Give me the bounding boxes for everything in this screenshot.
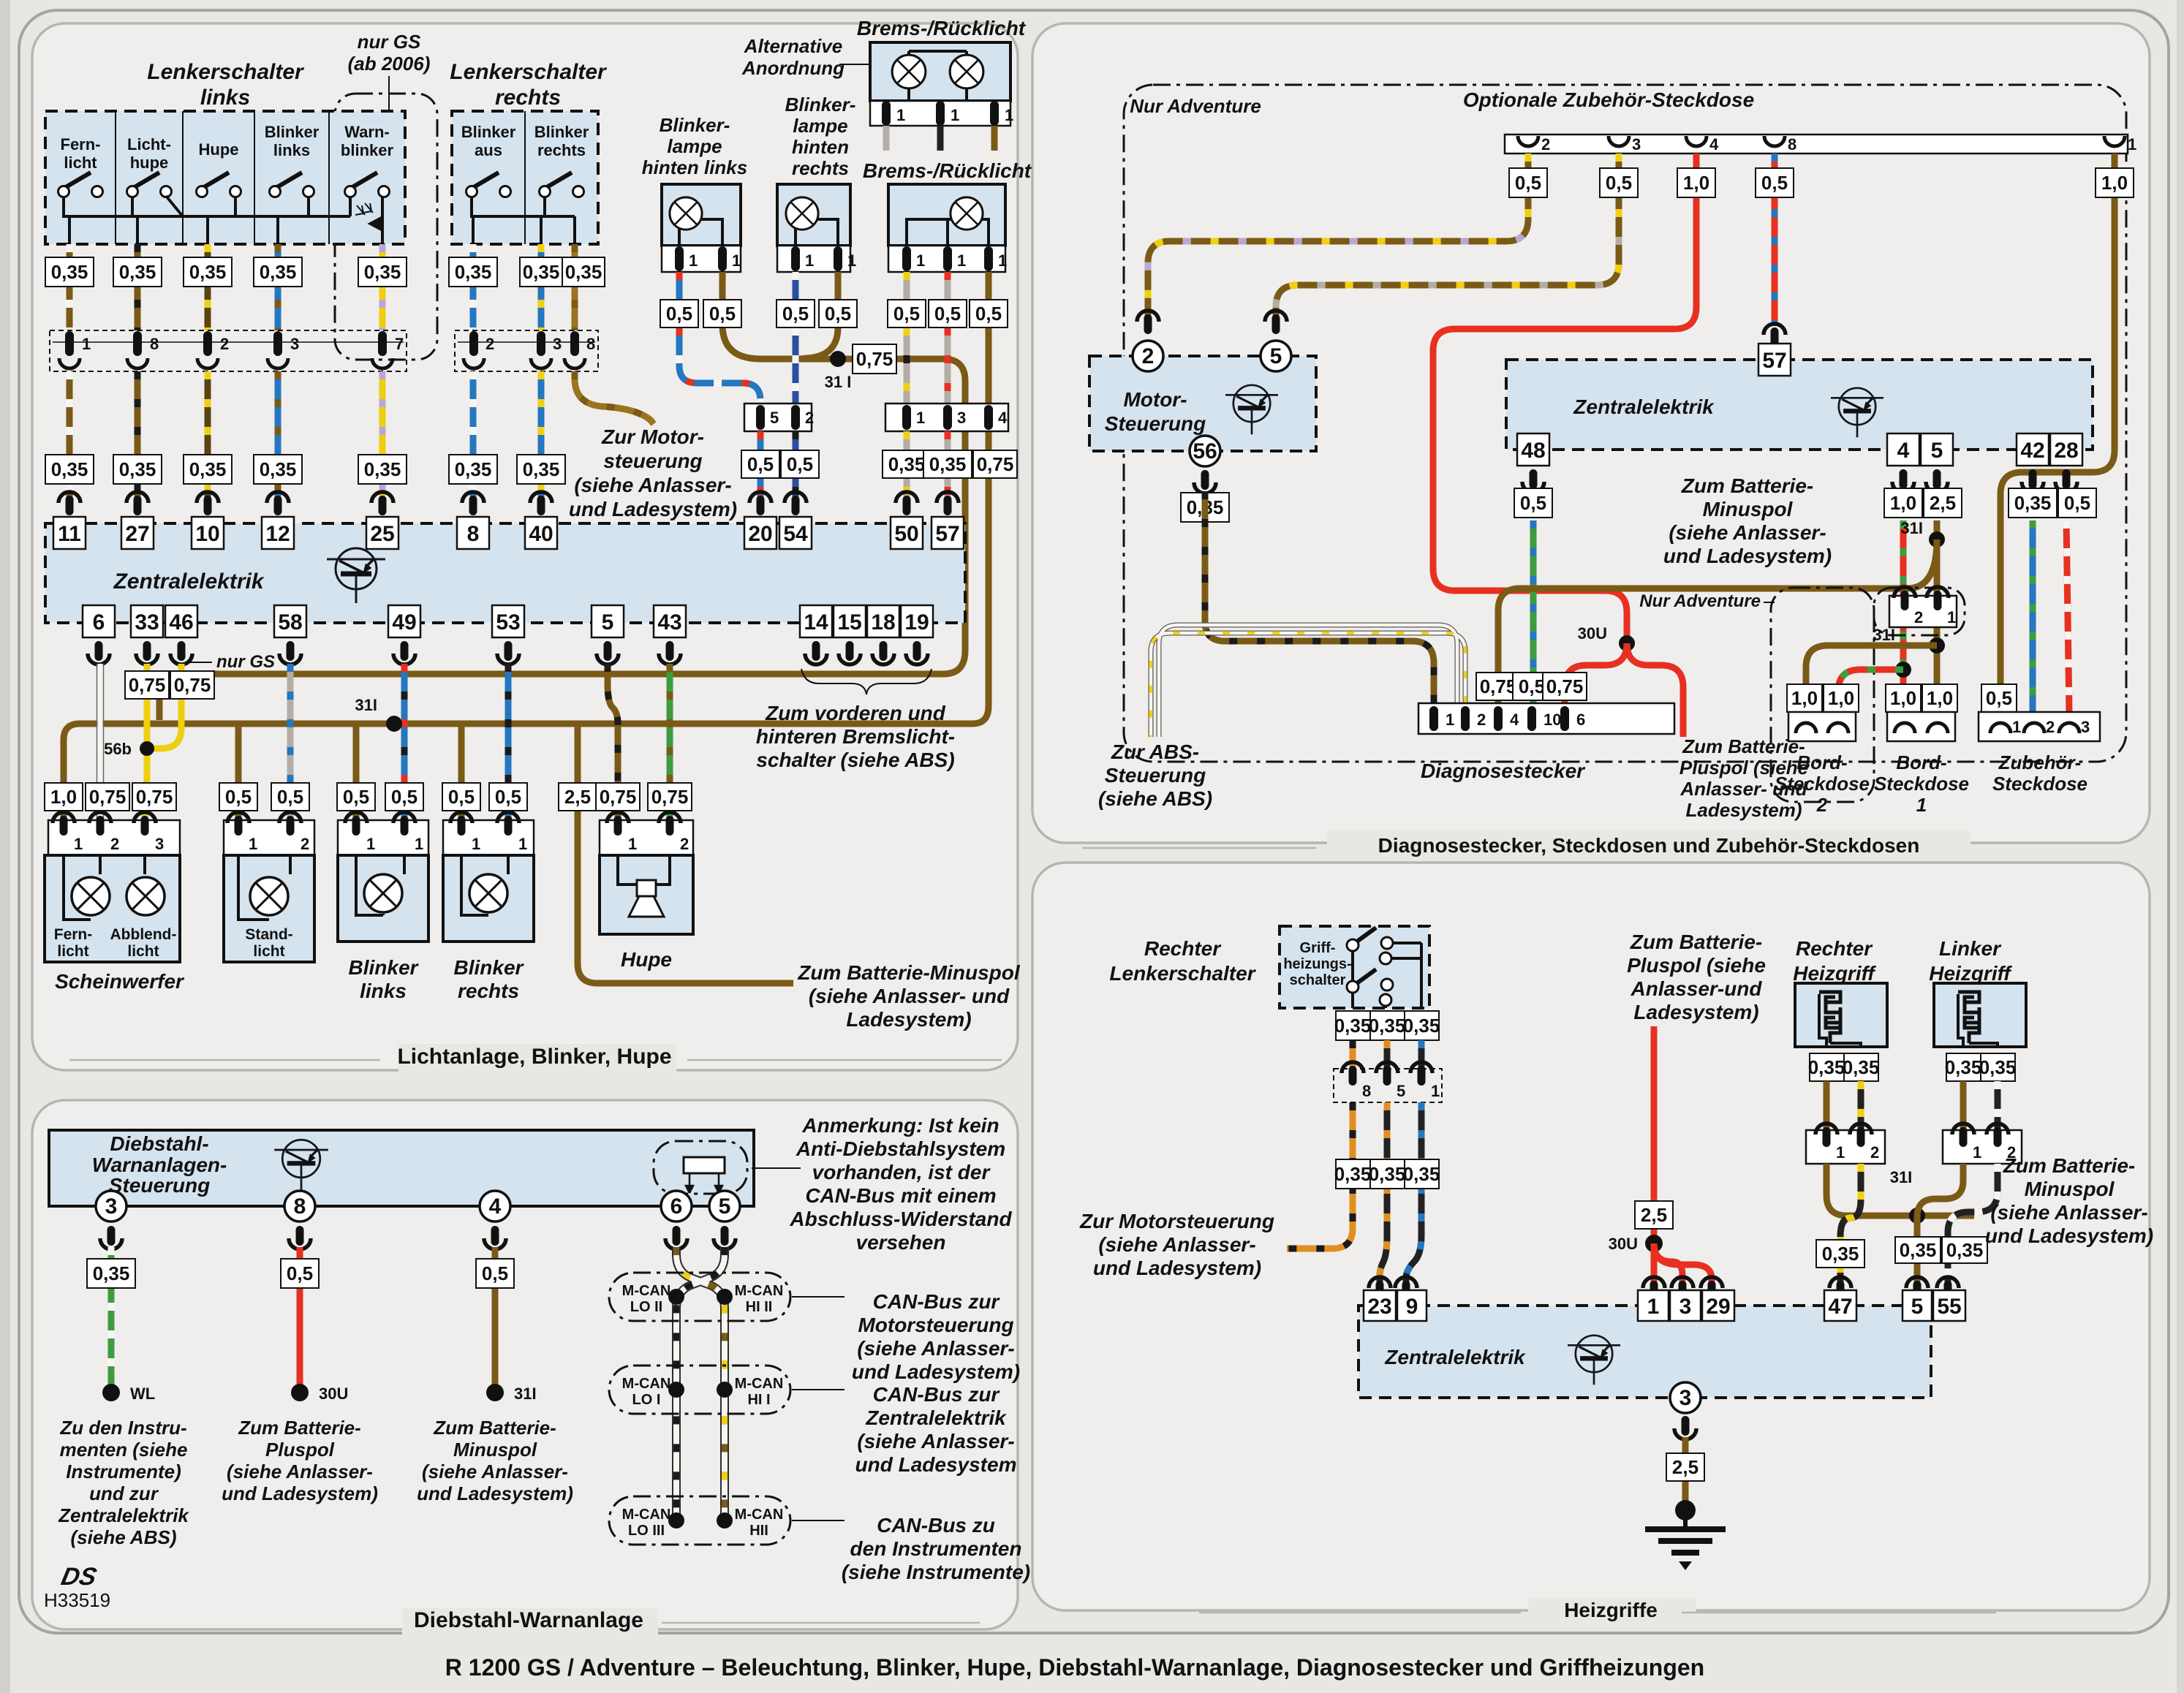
svg-text:Zentralelektrik: Zentralelektrik — [1573, 395, 1715, 418]
svg-text:1: 1 — [472, 835, 480, 853]
svg-text:1,0: 1,0 — [1828, 687, 1854, 709]
svg-text:hinten: hinten — [792, 136, 849, 158]
svg-text:Griff-: Griff- — [1300, 940, 1336, 956]
svg-text:31I: 31I — [1900, 519, 1923, 537]
svg-text:DS: DS — [58, 1563, 99, 1591]
svg-text:1: 1 — [1647, 1295, 1660, 1319]
svg-text:1: 1 — [249, 835, 257, 853]
svg-text:30U: 30U — [319, 1385, 348, 1403]
svg-text:1: 1 — [916, 409, 925, 427]
svg-text:Ladesystem): Ladesystem) — [846, 1008, 971, 1031]
svg-text:48: 48 — [1521, 439, 1545, 463]
svg-text:2: 2 — [805, 409, 814, 427]
svg-text:Hupe: Hupe — [199, 140, 239, 159]
svg-text:Minuspol: Minuspol — [453, 1439, 537, 1461]
svg-text:1: 1 — [896, 106, 905, 124]
svg-text:0,5: 0,5 — [1986, 687, 2012, 709]
svg-text:58: 58 — [278, 610, 302, 635]
svg-text:2: 2 — [1870, 1143, 1879, 1162]
svg-text:1: 1 — [957, 251, 966, 270]
svg-text:steuerung: steuerung — [603, 450, 702, 472]
svg-text:0,35: 0,35 — [1843, 1056, 1880, 1078]
svg-text:0,35: 0,35 — [189, 261, 227, 283]
svg-text:Zubehör-: Zubehör- — [1998, 751, 2082, 773]
svg-text:2: 2 — [1914, 608, 1923, 626]
svg-text:0,5: 0,5 — [1519, 675, 1545, 697]
svg-text:Scheinwerfer: Scheinwerfer — [55, 970, 185, 993]
svg-text:0,75: 0,75 — [600, 786, 637, 808]
svg-text:1: 1 — [1005, 106, 1013, 124]
svg-text:links: links — [273, 141, 310, 159]
svg-text:Zentralelektrik: Zentralelektrik — [865, 1406, 1007, 1429]
svg-text:42: 42 — [2020, 439, 2044, 463]
svg-text:2: 2 — [1541, 135, 1550, 154]
svg-text:Minuspol: Minuspol — [1703, 498, 1794, 520]
svg-text:0,35: 0,35 — [51, 261, 88, 283]
svg-text:3: 3 — [290, 335, 299, 353]
svg-text:0,5: 0,5 — [343, 786, 369, 808]
svg-text:und Ladesystem): und Ladesystem) — [1985, 1224, 2153, 1247]
svg-text:9: 9 — [1406, 1295, 1418, 1319]
svg-text:0,5: 0,5 — [277, 786, 303, 808]
svg-text:0,5: 0,5 — [448, 786, 475, 808]
svg-text:rechts: rechts — [495, 86, 561, 110]
svg-text:0,35: 0,35 — [119, 261, 156, 283]
svg-text:M-CAN: M-CAN — [735, 1507, 784, 1523]
svg-text:0,5: 0,5 — [1761, 172, 1788, 194]
svg-text:Rechter: Rechter — [1144, 937, 1222, 960]
svg-text:1: 1 — [2128, 135, 2136, 154]
svg-text:3: 3 — [2081, 718, 2090, 736]
svg-text:0,75: 0,75 — [651, 786, 689, 808]
svg-text:Ladesystem): Ladesystem) — [1633, 1001, 1758, 1023]
svg-text:8: 8 — [150, 335, 159, 353]
svg-text:5: 5 — [602, 610, 614, 635]
svg-text:2,5: 2,5 — [564, 786, 591, 808]
svg-text:Optionale Zubehör-Steckdose: Optionale Zubehör-Steckdose — [1463, 88, 1754, 111]
svg-text:Pluspol: Pluspol — [265, 1439, 335, 1461]
svg-text:lampe: lampe — [793, 115, 847, 137]
svg-text:40: 40 — [529, 522, 553, 546]
svg-text:H33519: H33519 — [44, 1589, 110, 1611]
svg-text:18: 18 — [871, 610, 895, 635]
svg-text:8: 8 — [1788, 135, 1796, 154]
svg-text:0,5: 0,5 — [825, 303, 851, 325]
svg-text:50: 50 — [894, 522, 918, 546]
svg-text:5: 5 — [719, 1194, 731, 1219]
svg-text:8: 8 — [586, 335, 595, 353]
svg-text:1,0: 1,0 — [1927, 687, 1953, 709]
svg-text:(siehe Anlasser-: (siehe Anlasser- — [574, 474, 731, 496]
svg-text:30U: 30U — [1578, 624, 1607, 643]
svg-text:0,35: 0,35 — [1334, 1163, 1372, 1185]
svg-text:M-CAN: M-CAN — [622, 1283, 671, 1299]
svg-text:0,5: 0,5 — [1606, 172, 1632, 194]
svg-text:LO II: LO II — [630, 1299, 662, 1315]
svg-text:5: 5 — [1397, 1082, 1405, 1100]
svg-text:31I: 31I — [355, 696, 377, 714]
svg-text:4: 4 — [489, 1194, 502, 1219]
svg-text:(siehe Anlasser-: (siehe Anlasser- — [1098, 1233, 1255, 1256]
svg-text:Alternative: Alternative — [744, 35, 842, 57]
svg-text:56: 56 — [1193, 439, 1217, 463]
svg-text:1: 1 — [415, 835, 423, 853]
svg-text:nur GS: nur GS — [216, 652, 275, 672]
svg-text:HI I: HI I — [747, 1392, 770, 1408]
svg-text:10: 10 — [195, 522, 219, 546]
svg-text:1: 1 — [1431, 1082, 1440, 1100]
svg-text:4: 4 — [998, 409, 1008, 427]
svg-text:3: 3 — [105, 1194, 118, 1219]
svg-text:Diebstahl-: Diebstahl- — [110, 1132, 208, 1155]
svg-text:(siehe Anlasser-: (siehe Anlasser- — [1990, 1201, 2147, 1224]
svg-text:CAN-Bus mit einem: CAN-Bus mit einem — [805, 1184, 996, 1207]
svg-text:0,5: 0,5 — [2064, 492, 2090, 514]
svg-text:1,0: 1,0 — [50, 786, 77, 808]
svg-text:hupe: hupe — [130, 154, 169, 172]
svg-text:0,35: 0,35 — [364, 261, 401, 283]
svg-text:12: 12 — [265, 522, 290, 546]
svg-text:Steckdose: Steckdose — [1775, 773, 1870, 795]
svg-text:8: 8 — [294, 1194, 306, 1219]
svg-text:47: 47 — [1828, 1295, 1852, 1319]
svg-text:Bord-: Bord- — [1796, 751, 1847, 773]
svg-text:Fern-: Fern- — [54, 926, 93, 943]
svg-text:0,35: 0,35 — [455, 261, 492, 283]
svg-text:1: 1 — [628, 835, 637, 853]
svg-text:0,35: 0,35 — [565, 261, 602, 283]
svg-text:Blinker: Blinker — [454, 956, 525, 979]
svg-text:Linker: Linker — [1939, 937, 2002, 960]
svg-text:0,75: 0,75 — [136, 786, 173, 808]
svg-text:54: 54 — [783, 522, 808, 546]
svg-text:11: 11 — [58, 522, 81, 546]
svg-text:0,35: 0,35 — [1900, 1239, 1937, 1261]
svg-text:menten (siehe: menten (siehe — [60, 1439, 188, 1461]
svg-text:hinten links: hinten links — [642, 156, 747, 178]
svg-text:0,35: 0,35 — [1334, 1015, 1372, 1037]
svg-text:3: 3 — [1632, 135, 1641, 154]
svg-text:Anlasser-und: Anlasser-und — [1631, 977, 1763, 1000]
svg-text:49: 49 — [392, 610, 416, 635]
svg-text:0,5: 0,5 — [975, 303, 1002, 325]
svg-text:Heizgriff: Heizgriff — [1929, 962, 2012, 985]
svg-text:Brems-/Rücklicht: Brems-/Rücklicht — [863, 159, 1032, 182]
svg-text:1: 1 — [847, 251, 856, 270]
svg-text:Lenkerschalter: Lenkerschalter — [450, 60, 608, 84]
svg-text:licht: licht — [64, 154, 97, 172]
svg-text:(ab 2006): (ab 2006) — [348, 53, 431, 75]
svg-text:0,75: 0,75 — [174, 674, 211, 696]
svg-text:CAN-Bus zu: CAN-Bus zu — [877, 1514, 995, 1537]
svg-text:Ladesystem): Ladesystem) — [1686, 799, 1802, 821]
svg-text:0,5: 0,5 — [787, 453, 813, 475]
svg-text:M-CAN: M-CAN — [735, 1376, 784, 1392]
svg-text:2,5: 2,5 — [1930, 492, 1956, 514]
svg-text:0,35: 0,35 — [1979, 1056, 2017, 1078]
svg-text:Steuerung: Steuerung — [109, 1174, 210, 1197]
svg-text:2: 2 — [2046, 718, 2055, 736]
svg-text:und Ladesystem): und Ladesystem) — [852, 1360, 1020, 1383]
svg-text:hinteren Bremslicht-: hinteren Bremslicht- — [756, 725, 955, 748]
svg-text:0,35: 0,35 — [523, 458, 560, 480]
svg-text:Instrumente): Instrumente) — [66, 1461, 181, 1482]
svg-text:Nur Adventure: Nur Adventure — [1639, 591, 1761, 611]
svg-text:0,35: 0,35 — [1369, 1015, 1406, 1037]
svg-text:Blinker: Blinker — [534, 123, 589, 141]
svg-text:Zum Batterie-: Zum Batterie- — [433, 1417, 556, 1439]
svg-text:Diagnosestecker: Diagnosestecker — [1421, 760, 1586, 782]
svg-text:Zur Motor-: Zur Motor- — [601, 425, 704, 448]
svg-text:0,75: 0,75 — [856, 348, 893, 370]
svg-text:Lenkerschalter: Lenkerschalter — [147, 60, 305, 84]
svg-text:4: 4 — [1897, 439, 1910, 463]
svg-text:(siehe Anlasser-: (siehe Anlasser- — [857, 1337, 1014, 1360]
svg-text:33: 33 — [135, 610, 159, 635]
svg-text:(siehe ABS): (siehe ABS) — [71, 1526, 177, 1548]
svg-text:19: 19 — [904, 610, 929, 635]
svg-text:und Ladesystem): und Ladesystem) — [569, 498, 737, 520]
svg-text:Rechter: Rechter — [1796, 937, 1873, 960]
svg-text:8: 8 — [1362, 1082, 1371, 1100]
svg-text:0,5: 0,5 — [747, 453, 774, 475]
svg-text:31I: 31I — [514, 1385, 537, 1403]
svg-text:0,5: 0,5 — [287, 1262, 313, 1284]
svg-text:Hupe: Hupe — [621, 948, 672, 971]
svg-text:1: 1 — [1836, 1143, 1845, 1162]
svg-text:Anti-Diebstahlsystem: Anti-Diebstahlsystem — [796, 1137, 1005, 1160]
svg-text:(siehe Anlasser-: (siehe Anlasser- — [227, 1461, 373, 1482]
svg-text:1,0: 1,0 — [2101, 172, 2128, 194]
svg-text:Minuspol: Minuspol — [2025, 1178, 2115, 1200]
svg-text:20: 20 — [748, 522, 772, 546]
svg-text:2: 2 — [220, 335, 229, 353]
svg-text:1: 1 — [951, 106, 959, 124]
svg-text:Motorsteuerung: Motorsteuerung — [858, 1314, 1013, 1336]
svg-text:Blinker: Blinker — [265, 123, 320, 141]
svg-text:1,0: 1,0 — [1890, 687, 1916, 709]
svg-text:schalter (siehe ABS): schalter (siehe ABS) — [756, 749, 954, 771]
svg-text:Blinker-: Blinker- — [785, 94, 856, 115]
svg-text:2,5: 2,5 — [1672, 1456, 1699, 1478]
svg-text:0,35: 0,35 — [1945, 1056, 1982, 1078]
svg-text:1: 1 — [689, 251, 698, 270]
svg-text:28: 28 — [2054, 439, 2078, 463]
svg-text:0,35: 0,35 — [51, 458, 88, 480]
svg-text:0,75: 0,75 — [1480, 675, 1517, 697]
svg-text:0,35: 0,35 — [93, 1262, 130, 1284]
svg-text:versehen: versehen — [856, 1231, 946, 1254]
svg-text:2: 2 — [1477, 711, 1486, 729]
svg-text:3: 3 — [1679, 1386, 1692, 1410]
svg-text:0,5: 0,5 — [709, 303, 736, 325]
svg-text:Abschluss-Widerstand: Abschluss-Widerstand — [789, 1208, 1012, 1230]
svg-text:Zentralelektrik: Zentralelektrik — [113, 569, 264, 594]
svg-text:Fern-: Fern- — [61, 135, 101, 154]
svg-text:0,35: 0,35 — [1822, 1243, 1859, 1265]
svg-text:Brems-/Rücklicht: Brems-/Rücklicht — [857, 17, 1027, 39]
svg-text:0,35: 0,35 — [1369, 1163, 1406, 1185]
svg-text:Bord-: Bord- — [1896, 751, 1946, 773]
svg-text:23: 23 — [1367, 1295, 1391, 1319]
svg-text:1,0: 1,0 — [1683, 172, 1709, 194]
svg-text:Stand-: Stand- — [245, 926, 292, 943]
svg-text:Zum Batterie-: Zum Batterie- — [238, 1417, 361, 1439]
svg-text:LO I: LO I — [632, 1392, 661, 1408]
svg-text:1: 1 — [366, 835, 375, 853]
svg-text:schalter: schalter — [1290, 972, 1346, 988]
svg-text:Heizgriff: Heizgriff — [1793, 962, 1876, 985]
svg-text:licht: licht — [253, 943, 284, 960]
svg-text:Steckdose: Steckdose — [1992, 773, 2087, 795]
svg-text:0,5: 0,5 — [934, 303, 961, 325]
svg-text:57: 57 — [935, 522, 959, 546]
svg-text:Licht-: Licht- — [127, 135, 171, 154]
svg-text:Steuerung: Steuerung — [1105, 764, 1206, 787]
svg-text:0,35: 0,35 — [2014, 492, 2052, 514]
svg-text:0,5: 0,5 — [893, 303, 920, 325]
svg-text:licht: licht — [127, 943, 159, 960]
svg-text:14: 14 — [804, 610, 828, 635]
svg-text:Zu den Instru-: Zu den Instru- — [59, 1417, 186, 1439]
svg-text:(siehe Anlasser-: (siehe Anlasser- — [422, 1461, 568, 1482]
svg-text:53: 53 — [496, 610, 520, 635]
svg-text:M-CAN: M-CAN — [735, 1283, 784, 1299]
svg-text:Anmerkung: Ist kein: Anmerkung: Ist kein — [801, 1114, 999, 1137]
svg-text:LO III: LO III — [628, 1523, 665, 1539]
svg-text:vorhanden, ist der: vorhanden, ist der — [812, 1161, 991, 1183]
svg-text:1: 1 — [732, 251, 741, 270]
svg-text:Steuerung: Steuerung — [1105, 412, 1206, 435]
svg-text:nur GS: nur GS — [358, 31, 421, 53]
svg-text:1: 1 — [1973, 1143, 1981, 1162]
svg-text:6: 6 — [670, 1194, 683, 1219]
svg-text:0,75: 0,75 — [129, 674, 166, 696]
svg-text:1,0: 1,0 — [1791, 687, 1818, 709]
svg-text:4: 4 — [1510, 711, 1519, 729]
svg-text:0,5: 0,5 — [225, 786, 252, 808]
svg-text:0,35: 0,35 — [260, 458, 297, 480]
svg-text:25: 25 — [370, 522, 394, 546]
svg-text:30U: 30U — [1609, 1235, 1638, 1253]
svg-text:Motor-: Motor- — [1123, 388, 1187, 411]
svg-text:0,35: 0,35 — [1946, 1239, 1984, 1261]
svg-text:1: 1 — [1947, 608, 1956, 626]
svg-text:Diagnosestecker, Steckdosen un: Diagnosestecker, Steckdosen und Zubehör-… — [1378, 834, 1920, 857]
svg-text:46: 46 — [169, 610, 193, 635]
svg-text:5: 5 — [1911, 1295, 1924, 1319]
svg-text:0,5: 0,5 — [1520, 492, 1546, 514]
svg-text:2: 2 — [485, 335, 494, 353]
svg-text:5: 5 — [1270, 344, 1282, 368]
svg-text:0,75: 0,75 — [89, 786, 126, 808]
svg-text:0,35: 0,35 — [929, 453, 967, 475]
svg-text:5: 5 — [770, 409, 779, 427]
svg-text:Steckdose: Steckdose — [1874, 773, 1969, 795]
svg-text:15: 15 — [837, 610, 861, 635]
svg-text:0,35: 0,35 — [888, 453, 926, 475]
svg-text:Warn-: Warn- — [344, 123, 390, 141]
svg-text:Blinker: Blinker — [461, 123, 516, 141]
svg-text:0,35: 0,35 — [364, 458, 401, 480]
svg-text:1: 1 — [518, 835, 527, 853]
svg-text:CAN-Bus zur: CAN-Bus zur — [873, 1383, 1001, 1406]
svg-text:den Instrumenten: den Instrumenten — [850, 1537, 1022, 1560]
svg-text:M-CAN: M-CAN — [622, 1376, 671, 1392]
svg-text:lampe: lampe — [667, 135, 722, 157]
svg-text:7: 7 — [395, 335, 404, 353]
svg-text:0,35: 0,35 — [523, 261, 560, 283]
svg-text:56b: 56b — [104, 740, 132, 758]
svg-text:5: 5 — [1931, 439, 1943, 463]
svg-text:3: 3 — [155, 835, 164, 853]
svg-text:1: 1 — [2012, 718, 2021, 736]
svg-text:Blinker-: Blinker- — [660, 114, 730, 136]
svg-text:4: 4 — [1709, 135, 1719, 154]
svg-text:Zur Motorsteuerung: Zur Motorsteuerung — [1079, 1210, 1274, 1232]
svg-text:0,35: 0,35 — [189, 458, 227, 480]
svg-text:links: links — [360, 980, 407, 1002]
svg-text:Zum Batterie-Minuspol: Zum Batterie-Minuspol — [797, 961, 1021, 984]
svg-text:Zentralelektrik: Zentralelektrik — [1384, 1346, 1526, 1368]
svg-text:HI II: HI II — [746, 1299, 773, 1315]
svg-text:und Ladesystem): und Ladesystem) — [1663, 545, 1832, 567]
svg-text:Lenkerschalter: Lenkerschalter — [1109, 962, 1256, 985]
svg-text:0,35: 0,35 — [1403, 1163, 1440, 1185]
svg-text:Zur ABS-: Zur ABS- — [1111, 741, 1199, 763]
svg-text:WL: WL — [130, 1385, 155, 1403]
svg-text:0,5: 0,5 — [666, 303, 692, 325]
svg-text:2: 2 — [1142, 344, 1155, 368]
svg-text:Blinker: Blinker — [349, 956, 420, 979]
svg-text:und Ladesystem): und Ladesystem) — [417, 1482, 573, 1504]
svg-text:8: 8 — [467, 522, 480, 546]
svg-text:1: 1 — [1916, 794, 1927, 816]
svg-text:0,35: 0,35 — [455, 458, 492, 480]
svg-text:2: 2 — [1816, 794, 1828, 816]
svg-text:1: 1 — [916, 251, 925, 270]
svg-text:43: 43 — [657, 610, 681, 635]
svg-text:57: 57 — [1762, 349, 1786, 373]
svg-text:Heizgriffe: Heizgriffe — [1564, 1599, 1658, 1621]
svg-text:Zum Batterie-: Zum Batterie- — [1681, 474, 1813, 497]
svg-text:0,5: 0,5 — [482, 1262, 508, 1284]
svg-text:1,0: 1,0 — [1890, 492, 1916, 514]
svg-text:CAN-Bus zur: CAN-Bus zur — [873, 1290, 1001, 1313]
svg-text:und Ladesystem): und Ladesystem) — [1093, 1257, 1261, 1279]
svg-text:0,35: 0,35 — [260, 261, 297, 283]
svg-text:Nur Adventure: Nur Adventure — [1130, 95, 1261, 117]
svg-text:aus: aus — [475, 141, 502, 159]
svg-text:Zum Batterie-: Zum Batterie- — [1682, 735, 1805, 757]
svg-text:0,5: 0,5 — [1515, 172, 1541, 194]
svg-text:heizungs-: heizungs- — [1283, 956, 1351, 972]
svg-text:Lichtanlage, Blinker, Hupe: Lichtanlage, Blinker, Hupe — [397, 1045, 671, 1069]
svg-text:rechts: rechts — [458, 980, 519, 1002]
svg-text:10: 10 — [1543, 711, 1561, 729]
svg-text:1: 1 — [74, 835, 83, 853]
svg-text:6: 6 — [1576, 711, 1585, 729]
svg-text:Warnanlagen-: Warnanlagen- — [92, 1154, 227, 1176]
svg-text:3: 3 — [1679, 1295, 1692, 1319]
svg-text:31 I: 31 I — [825, 373, 852, 391]
svg-text:1: 1 — [998, 251, 1007, 270]
svg-text:und Ladesystem): und Ladesystem) — [222, 1482, 378, 1504]
svg-text:Pluspol (siehe: Pluspol (siehe — [1627, 954, 1766, 977]
svg-text:6: 6 — [93, 610, 105, 635]
svg-text:und zur: und zur — [89, 1482, 159, 1504]
svg-text:0,5: 0,5 — [782, 303, 809, 325]
